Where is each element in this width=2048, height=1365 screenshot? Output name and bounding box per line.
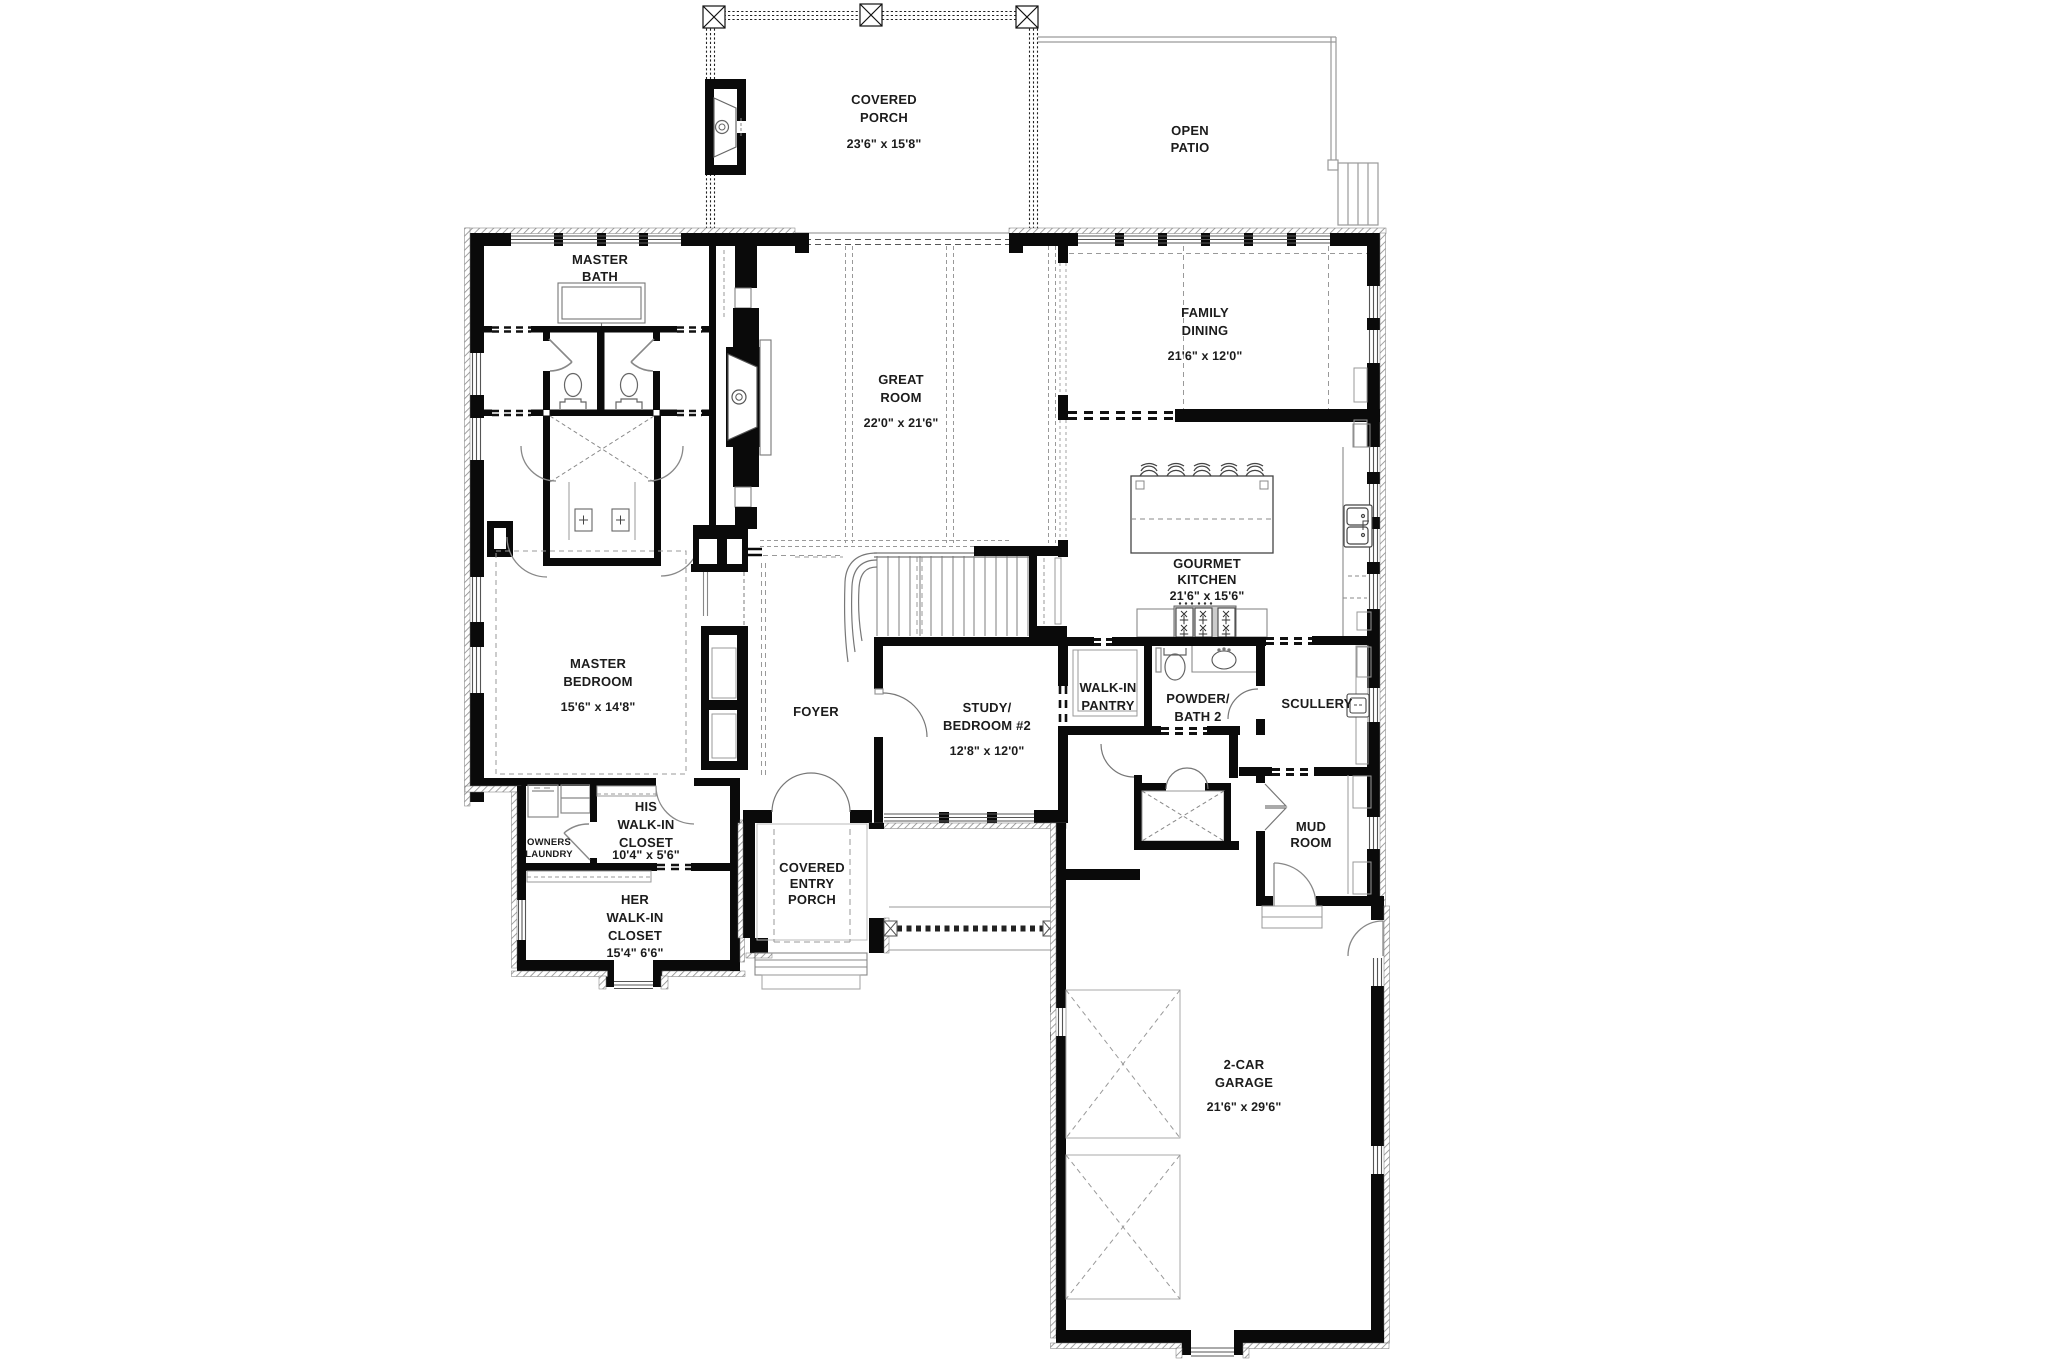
svg-text:PORCH: PORCH: [860, 110, 908, 125]
svg-text:STUDY/: STUDY/: [963, 700, 1012, 715]
svg-text:KITCHEN: KITCHEN: [1177, 572, 1236, 587]
svg-text:MASTER: MASTER: [572, 252, 629, 267]
svg-text:PANTRY: PANTRY: [1081, 698, 1134, 713]
svg-text:21'6" x 12'0": 21'6" x 12'0": [1168, 349, 1243, 363]
svg-text:CLOSET: CLOSET: [608, 928, 662, 943]
svg-text:21'6" x 15'6": 21'6" x 15'6": [1170, 589, 1245, 603]
svg-text:DINING: DINING: [1182, 323, 1229, 338]
svg-text:OPEN: OPEN: [1171, 123, 1209, 138]
svg-text:21'6" x 29'6": 21'6" x 29'6": [1207, 1100, 1282, 1114]
svg-text:BEDROOM: BEDROOM: [563, 674, 632, 689]
svg-text:WALK-IN: WALK-IN: [607, 910, 664, 925]
svg-text:FOYER: FOYER: [793, 704, 839, 719]
svg-text:2-CAR: 2-CAR: [1224, 1057, 1265, 1072]
svg-text:BATH: BATH: [582, 269, 618, 284]
svg-text:ENTRY: ENTRY: [790, 876, 835, 891]
svg-text:GOURMET: GOURMET: [1173, 556, 1241, 571]
svg-text:GARAGE: GARAGE: [1215, 1075, 1273, 1090]
svg-text:15'6" x 14'8": 15'6" x 14'8": [561, 700, 636, 714]
svg-text:PORCH: PORCH: [788, 892, 836, 907]
svg-text:WALK-IN: WALK-IN: [618, 817, 675, 832]
svg-text:OWNERS: OWNERS: [527, 837, 571, 848]
svg-text:COVERED: COVERED: [779, 860, 845, 875]
svg-text:WALK-IN: WALK-IN: [1080, 680, 1137, 695]
svg-text:HER: HER: [621, 892, 649, 907]
svg-text:ROOM: ROOM: [880, 390, 921, 405]
svg-text:15'4" 6'6": 15'4" 6'6": [606, 946, 663, 960]
svg-text:12'8" x 12'0": 12'8" x 12'0": [950, 744, 1025, 758]
svg-text:10'4" x 5'6": 10'4" x 5'6": [612, 848, 680, 862]
svg-text:MASTER: MASTER: [570, 656, 627, 671]
svg-text:23'6" x 15'8": 23'6" x 15'8": [847, 137, 922, 151]
svg-text:GREAT: GREAT: [878, 372, 924, 387]
svg-text:BEDROOM #2: BEDROOM #2: [943, 718, 1031, 733]
svg-text:LAUNDRY: LAUNDRY: [525, 849, 573, 860]
svg-text:HIS: HIS: [635, 799, 657, 814]
svg-text:POWDER/: POWDER/: [1166, 691, 1230, 706]
svg-text:SCULLERY: SCULLERY: [1281, 696, 1352, 711]
svg-text:PATIO: PATIO: [1171, 140, 1210, 155]
svg-text:BATH 2: BATH 2: [1174, 709, 1221, 724]
svg-text:ROOM: ROOM: [1290, 835, 1331, 850]
svg-text:MUD: MUD: [1296, 819, 1326, 834]
svg-text:COVERED: COVERED: [851, 92, 917, 107]
svg-text:22'0" x 21'6": 22'0" x 21'6": [864, 416, 939, 430]
svg-text:FAMILY: FAMILY: [1181, 305, 1229, 320]
